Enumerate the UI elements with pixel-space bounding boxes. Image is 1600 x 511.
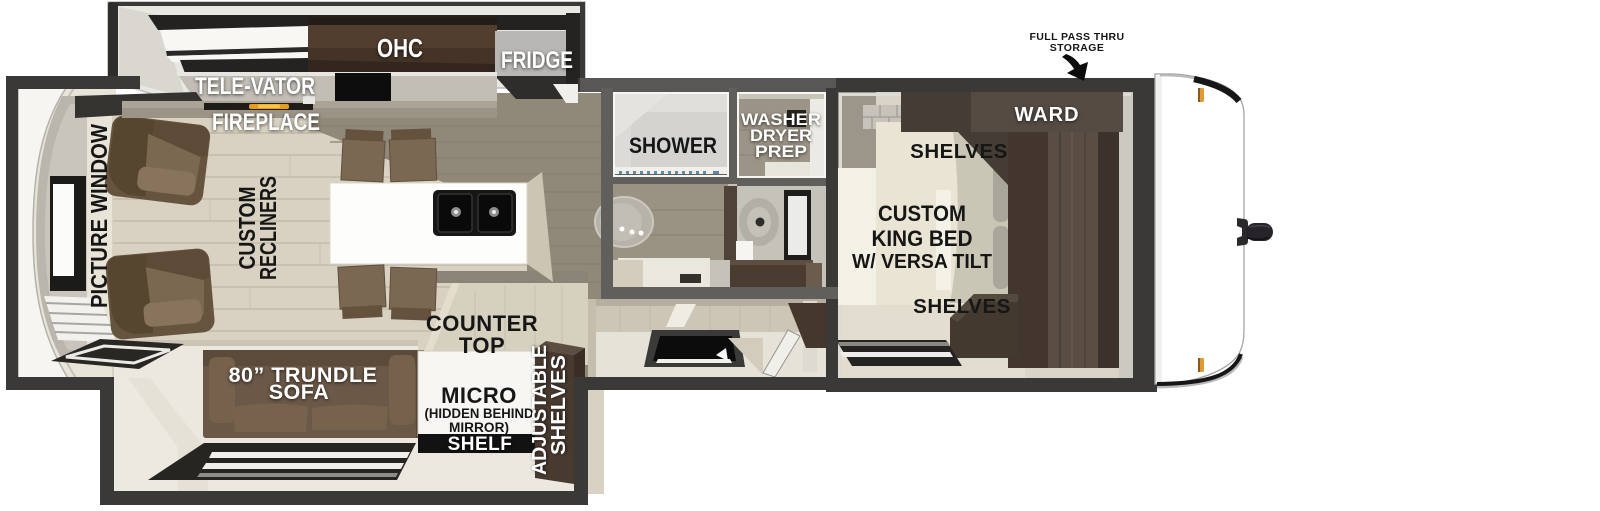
svg-text:TELE-VATOR: TELE-VATOR (195, 73, 315, 100)
svg-text:(HIDDEN BEHIND: (HIDDEN BEHIND (425, 406, 534, 421)
svg-text:W/ VERSA TILT: W/ VERSA TILT (852, 251, 992, 273)
svg-text:STORAGE: STORAGE (1050, 42, 1105, 54)
svg-text:TOP: TOP (459, 333, 505, 358)
svg-text:RECLINERS: RECLINERS (255, 176, 281, 280)
svg-text:SHOWER: SHOWER (629, 133, 717, 158)
svg-text:MIRROR): MIRROR) (449, 420, 509, 435)
svg-text:FRIDGE: FRIDGE (501, 47, 573, 74)
svg-text:FIREPLACE: FIREPLACE (212, 109, 320, 136)
svg-text:CUSTOM: CUSTOM (878, 201, 966, 226)
svg-text:KING BED: KING BED (872, 226, 973, 251)
svg-text:PICTURE WINDOW: PICTURE WINDOW (86, 124, 112, 308)
svg-text:SHELF: SHELF (448, 434, 513, 455)
svg-text:PREP: PREP (755, 142, 807, 161)
svg-text:SHELVES: SHELVES (913, 295, 1011, 318)
svg-text:OHC: OHC (377, 33, 423, 63)
svg-text:SHELVES: SHELVES (548, 355, 570, 455)
svg-text:WARD: WARD (1014, 104, 1079, 126)
svg-text:MICRO: MICRO (441, 383, 517, 408)
svg-text:SOFA: SOFA (269, 380, 330, 404)
svg-text:SHELVES: SHELVES (910, 140, 1008, 163)
